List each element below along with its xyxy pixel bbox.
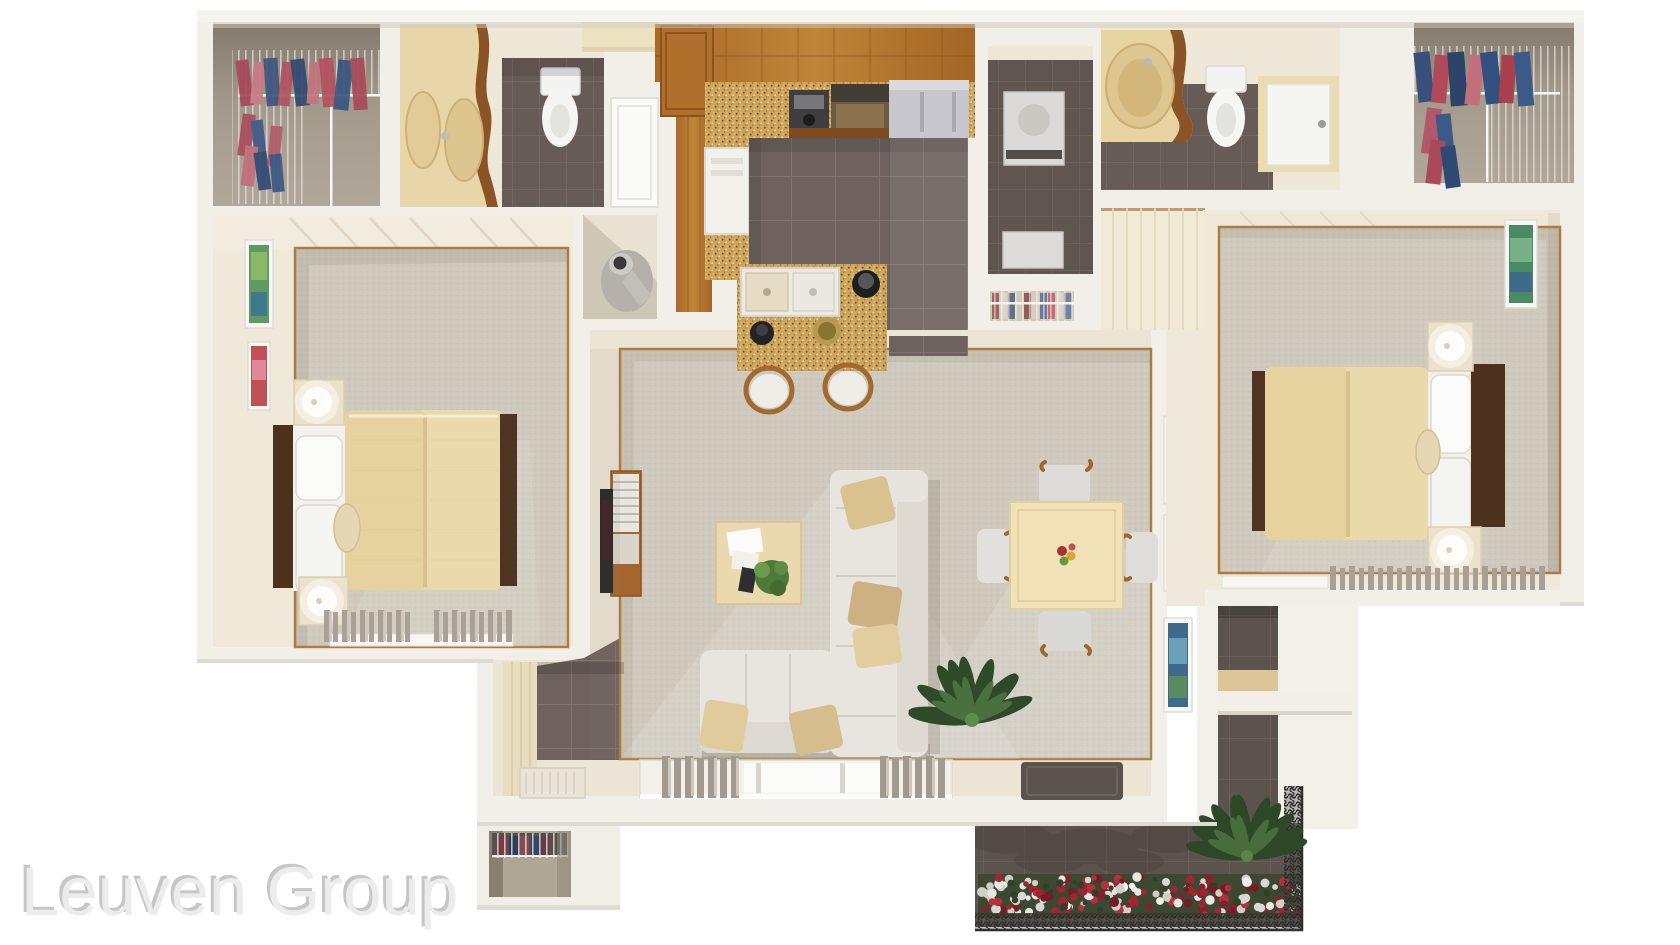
svg-text:Leuven Group: Leuven Group [21,853,458,930]
